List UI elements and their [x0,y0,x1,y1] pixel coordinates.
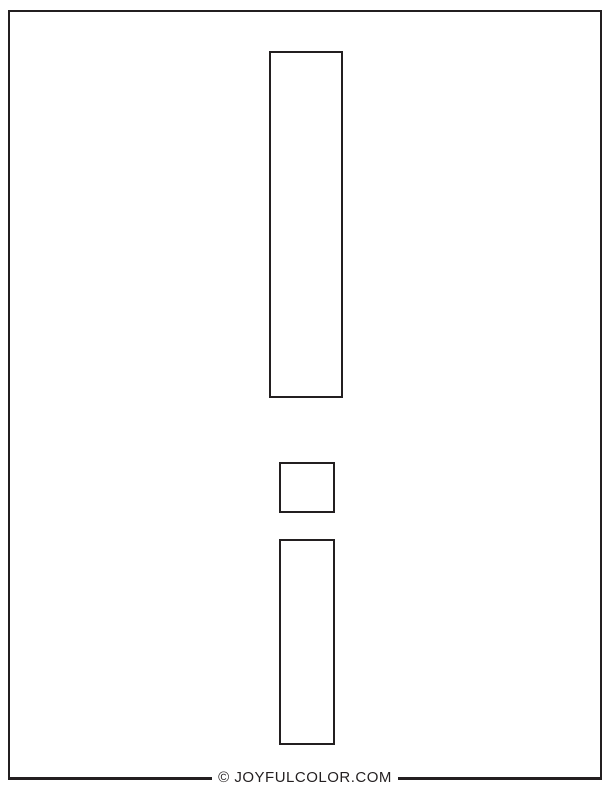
footer-rule-right [398,777,602,780]
footer-credit: © JOYFULCOLOR.COM [212,766,398,790]
lowercase-i-dot-outline [279,462,335,513]
footer-rule-left [8,777,212,780]
coloring-page: © JOYFULCOLOR.COM [0,0,612,792]
uppercase-i-outline [269,51,343,398]
footer: © JOYFULCOLOR.COM [8,766,602,790]
lowercase-i-stem-outline [279,539,335,745]
